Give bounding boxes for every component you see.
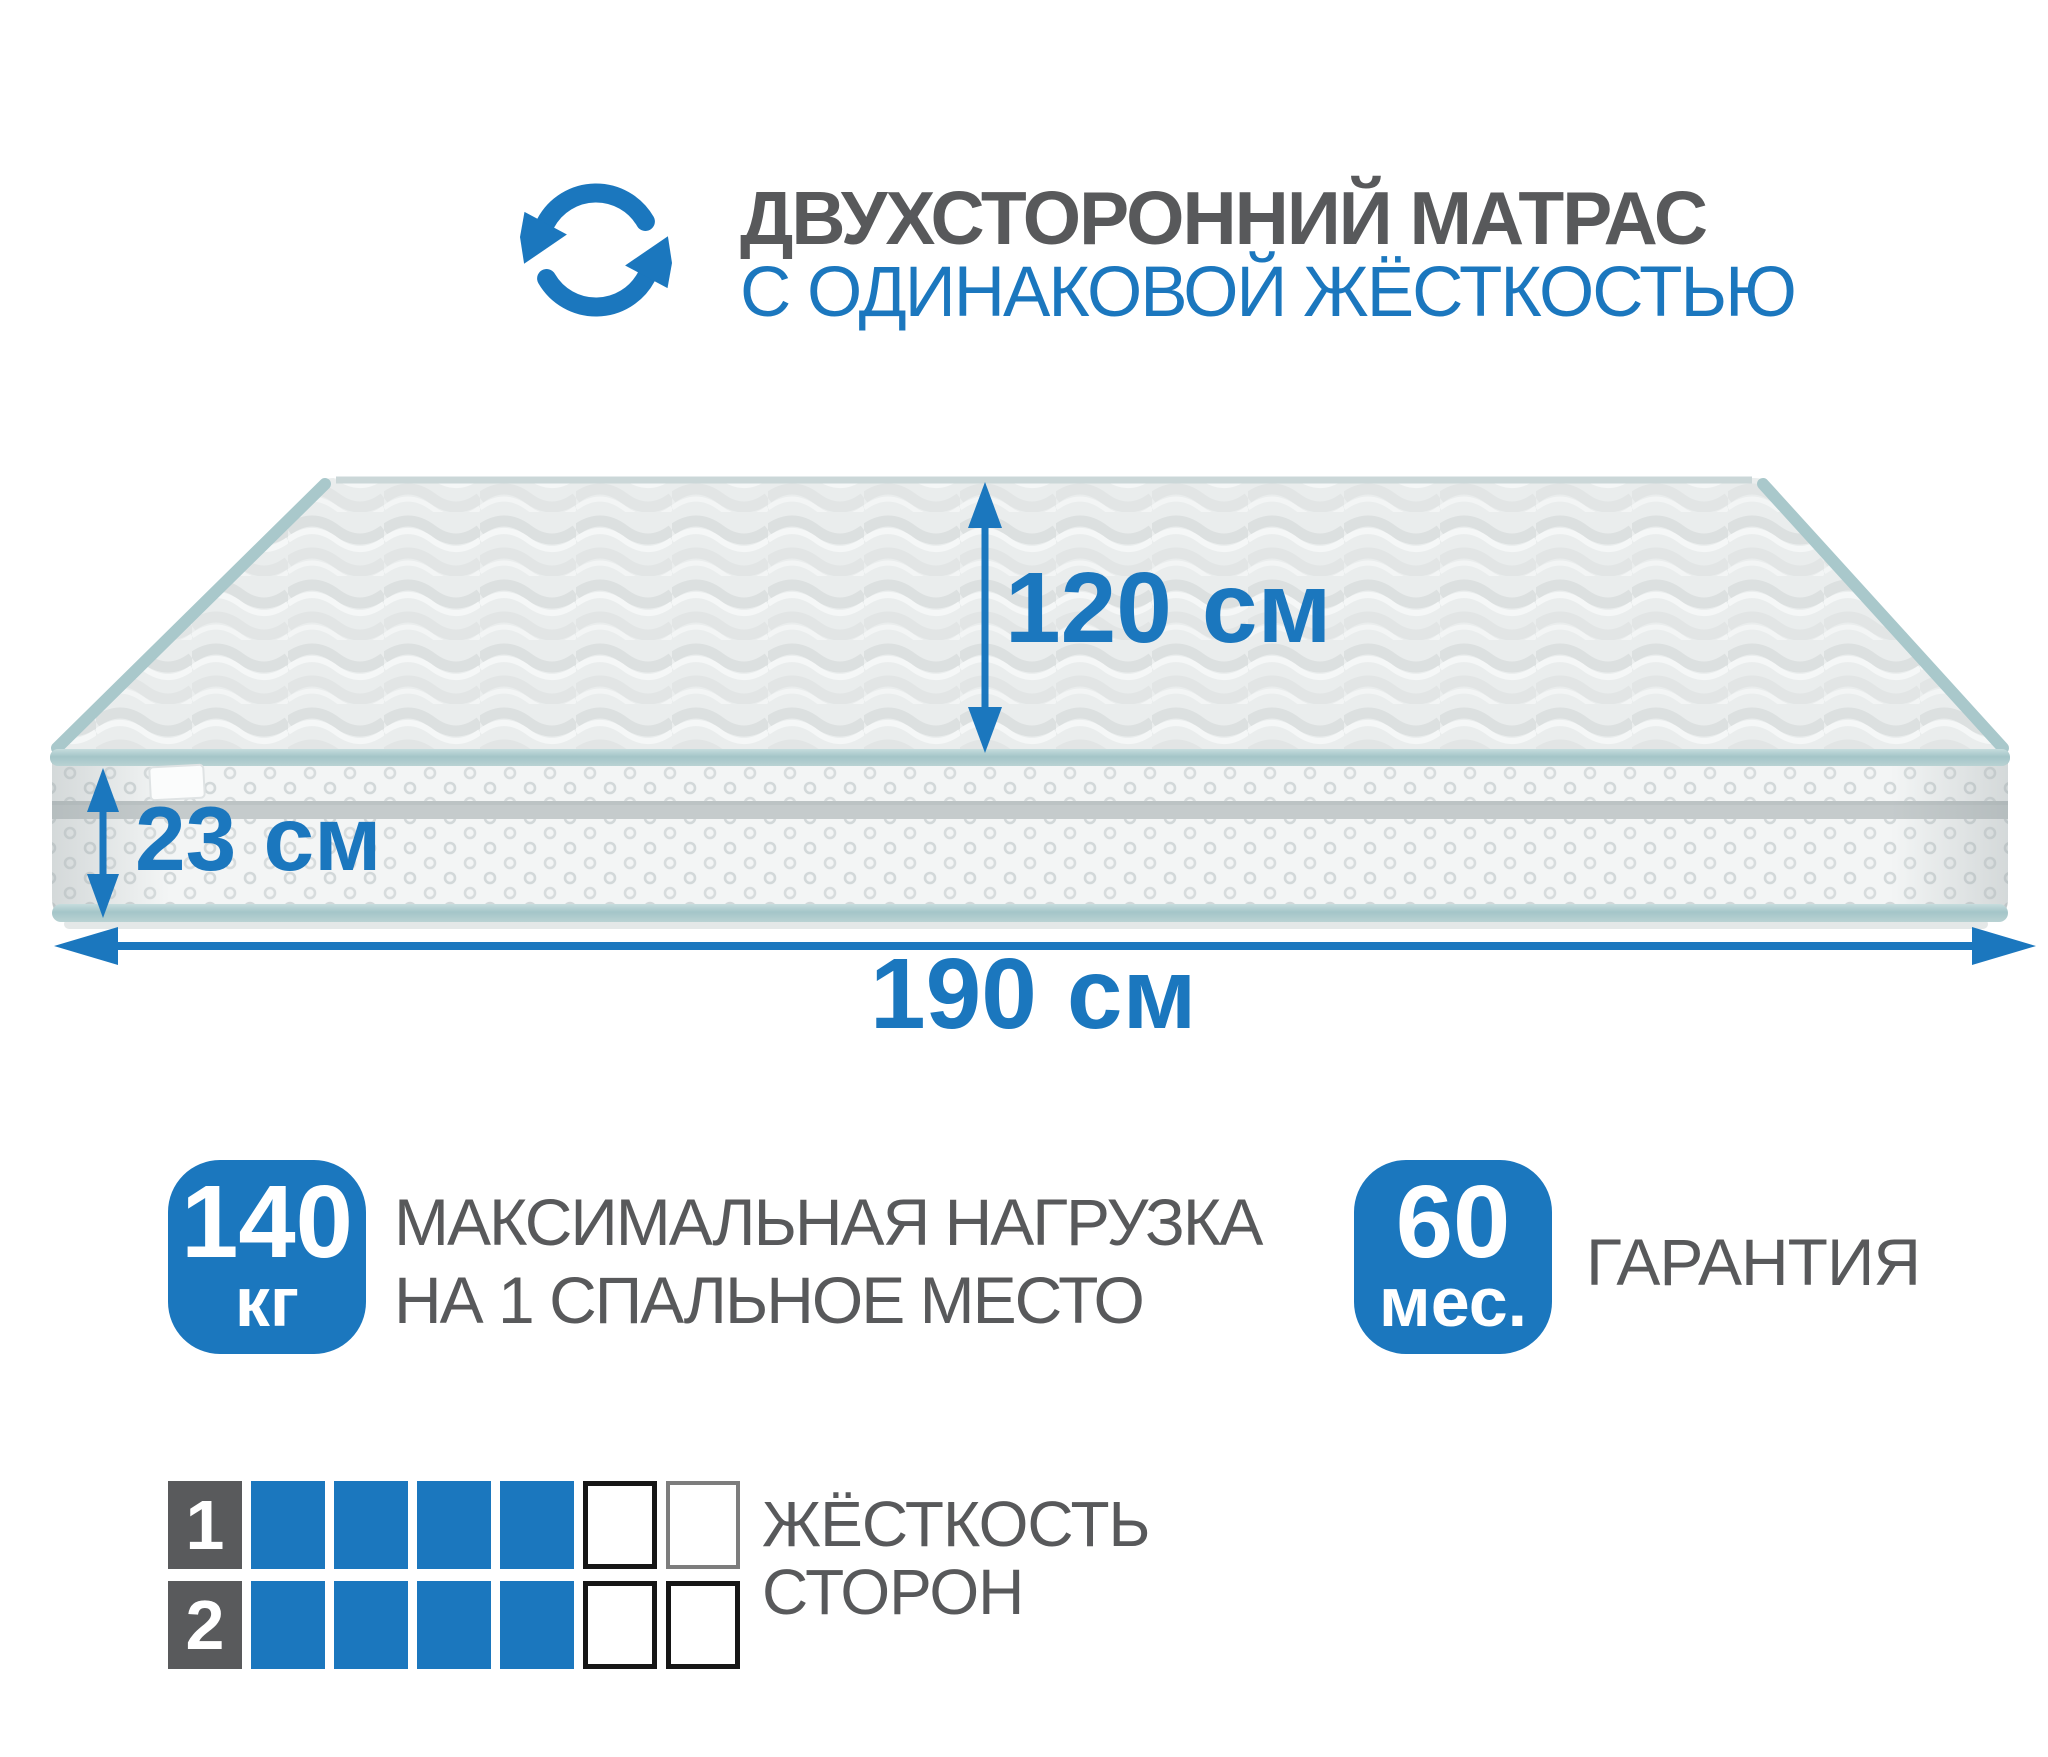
warranty-unit: мес. [1379, 1267, 1527, 1337]
dimension-unit: см [264, 789, 382, 890]
firmness-label: ЖЁСТКОСТЬ СТОРОН [762, 1490, 1150, 1626]
max-load-description: МАКСИМАЛЬНАЯ НАГРУЗКА НА 1 СПАЛЬНОЕ МЕСТ… [394, 1183, 1261, 1339]
max-load-badge: 140 кг [168, 1160, 366, 1354]
dimension-label-height: 23см [135, 794, 381, 885]
dimension-label-length: 190см [870, 944, 1196, 1044]
firmness-cell-filled [251, 1581, 325, 1669]
firmness-cell-filled [500, 1581, 574, 1669]
firmness-scale: 1 2 [168, 1481, 740, 1681]
dimension-unit: см [1067, 938, 1197, 1050]
warranty-badge: 60 мес. [1354, 1160, 1552, 1354]
firmness-cell-empty-gray [666, 1481, 740, 1569]
max-load-unit: кг [235, 1267, 299, 1337]
firmness-row-number: 2 [168, 1581, 242, 1669]
max-load-description-line2: НА 1 СПАЛЬНОЕ МЕСТО [394, 1261, 1261, 1339]
max-load-value: 140 [181, 1177, 353, 1268]
firmness-cell-filled [417, 1481, 491, 1569]
mattress-front-bottom-piping [52, 904, 2008, 922]
firmness-cell-filled [417, 1581, 491, 1669]
firmness-cell-filled [334, 1481, 408, 1569]
firmness-cell-empty-dark [666, 1581, 740, 1669]
firmness-cells-row-1 [251, 1481, 740, 1569]
infographic-stage: ДВУХСТОРОННИЙ МАТРАС С ОДИНАКОВОЙ ЖЁСТКО… [0, 0, 2048, 1757]
warranty-value: 60 [1396, 1177, 1511, 1268]
warranty-label: ГАРАНТИЯ [1586, 1224, 1920, 1300]
firmness-label-line2: СТОРОН [762, 1558, 1150, 1626]
max-load-description-line1: МАКСИМАЛЬНАЯ НАГРУЗКА [394, 1183, 1261, 1261]
firmness-cell-filled [251, 1481, 325, 1569]
mattress-front-top-piping [50, 749, 2010, 766]
firmness-cell-filled [334, 1581, 408, 1669]
firmness-row-1: 1 [168, 1481, 740, 1569]
firmness-row-2: 2 [168, 1581, 740, 1669]
dimension-value: 190 [870, 938, 1037, 1050]
firmness-row-number: 1 [168, 1481, 242, 1569]
dimension-value: 23 [135, 789, 236, 890]
dimension-unit: см [1202, 552, 1332, 664]
firmness-cell-filled [500, 1481, 574, 1569]
dimension-label-width: 120см [1005, 558, 1331, 658]
firmness-label-line1: ЖЁСТКОСТЬ [762, 1490, 1150, 1558]
firmness-cells-row-2 [251, 1581, 740, 1669]
dimension-value: 120 [1005, 552, 1172, 664]
firmness-cell-empty-dark [583, 1581, 657, 1669]
firmness-cell-empty-dark [583, 1481, 657, 1569]
